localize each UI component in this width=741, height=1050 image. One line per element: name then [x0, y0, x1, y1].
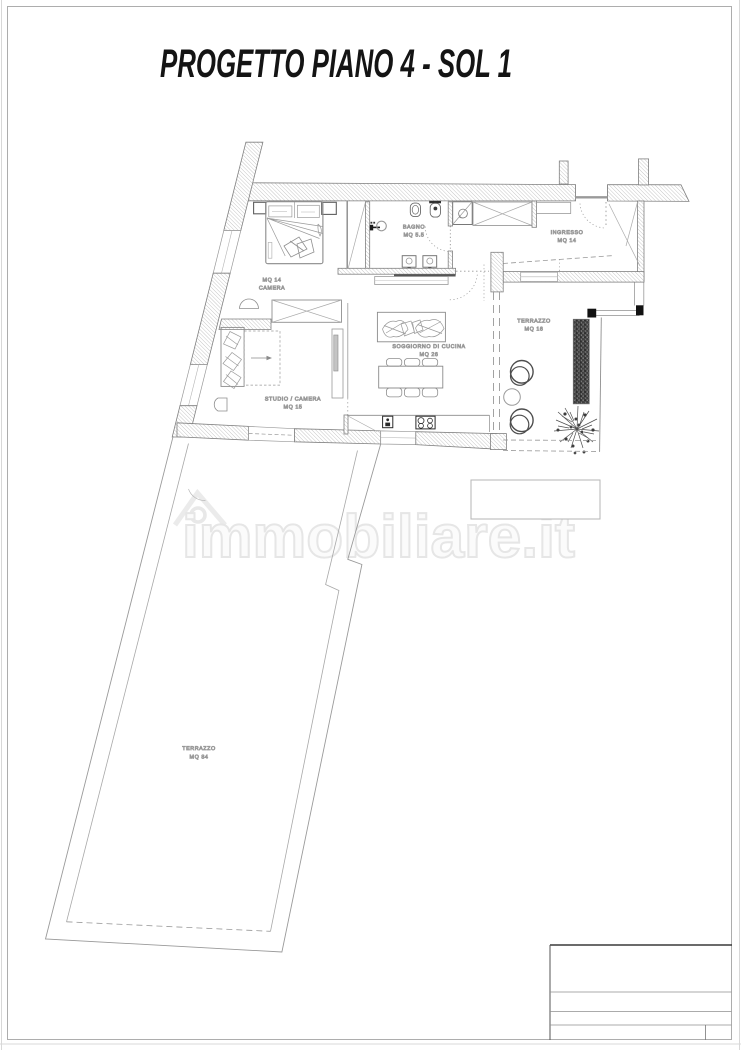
svg-text:MQ 5.5: MQ 5.5: [404, 233, 425, 239]
svg-text:MQ 16: MQ 16: [525, 327, 544, 333]
svg-text:TERRAZZO: TERRAZZO: [182, 746, 215, 752]
svg-text:MQ 26: MQ 26: [420, 352, 439, 358]
svg-text:MQ 14: MQ 14: [263, 278, 282, 284]
svg-text:PROGETTO PIANO 4 - SOL 1: PROGETTO PIANO 4 - SOL 1: [160, 42, 512, 86]
svg-text:INGRESSO: INGRESSO: [551, 230, 584, 236]
svg-text:STUDIO / CAMERA: STUDIO / CAMERA: [265, 397, 321, 403]
svg-text:BAGNO: BAGNO: [403, 225, 425, 231]
svg-text:SOGGIORNO DI CUCINA: SOGGIORNO DI CUCINA: [392, 344, 465, 350]
svg-text:MQ 84: MQ 84: [190, 755, 209, 761]
svg-text:MQ 14: MQ 14: [558, 238, 577, 244]
svg-text:MQ 15: MQ 15: [284, 405, 303, 411]
svg-text:CAMERA: CAMERA: [259, 286, 285, 292]
svg-text:TERRAZZO: TERRAZZO: [517, 319, 550, 325]
